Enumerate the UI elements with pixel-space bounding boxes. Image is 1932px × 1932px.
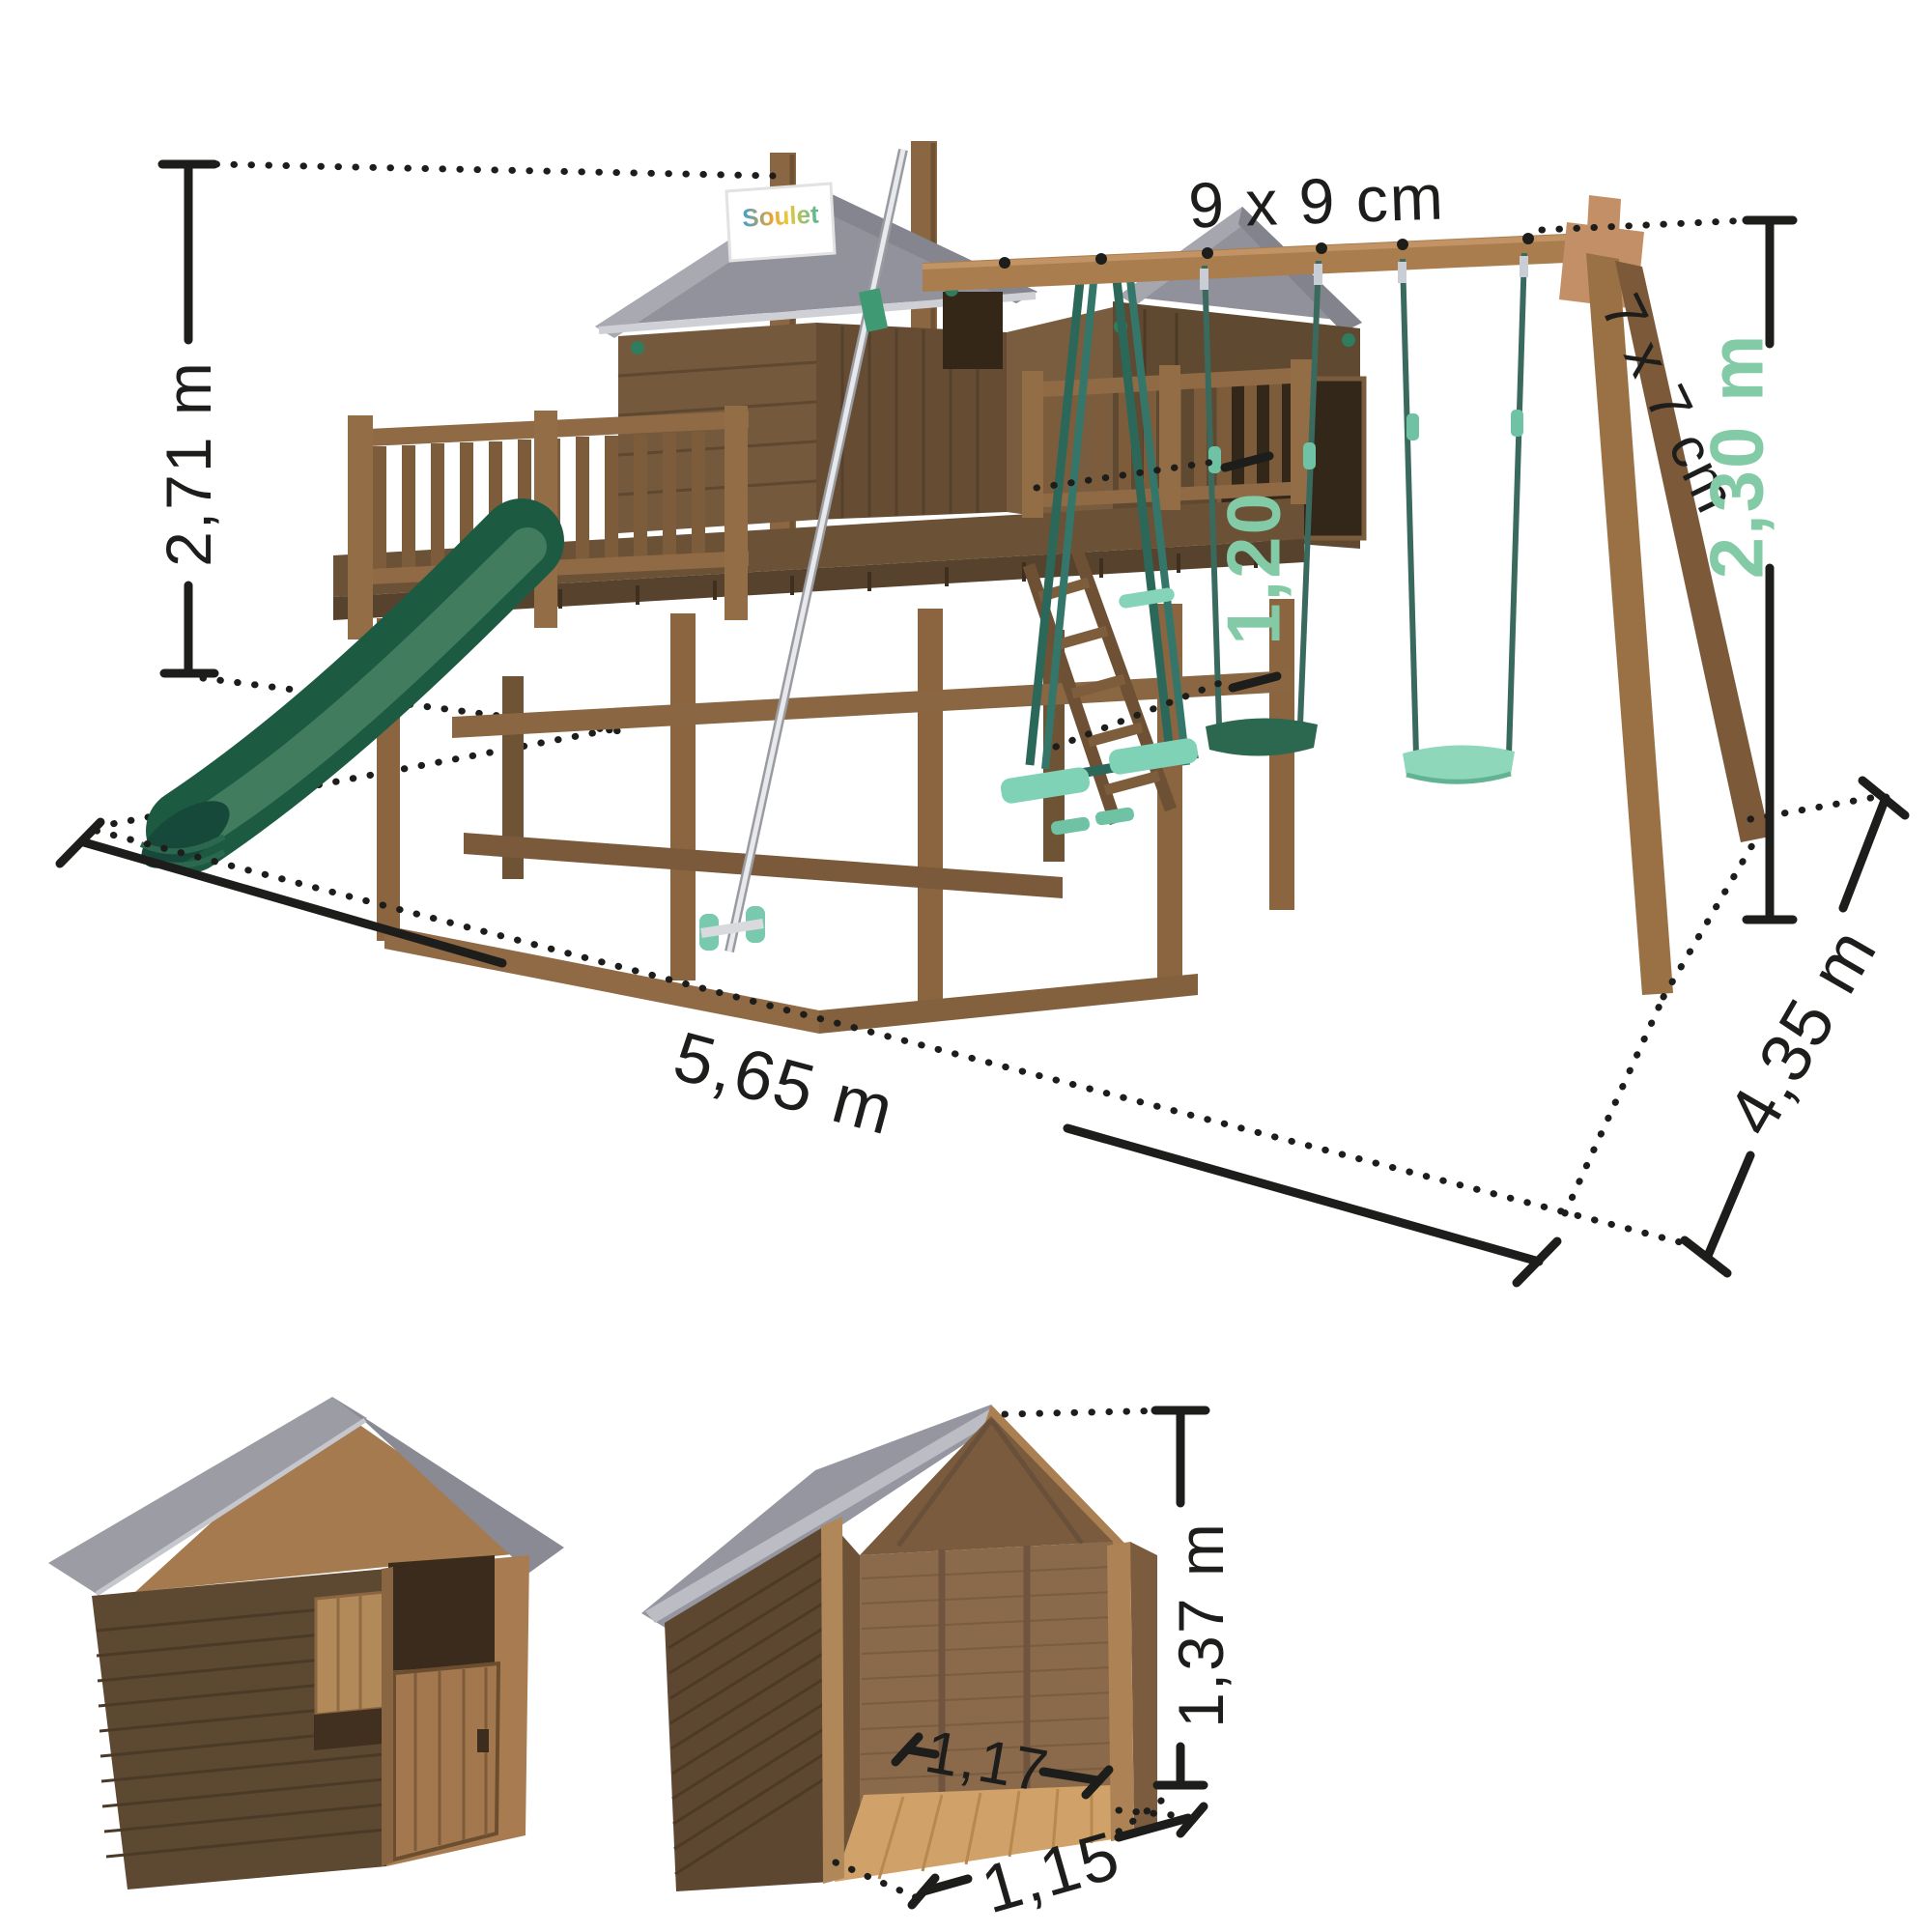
swing-seat-dark: [1206, 718, 1318, 755]
dim-beam-section-label: 9 x 9 cm: [1187, 159, 1446, 241]
dim-swing-beam-height-label: 2,30 m: [1693, 333, 1781, 580]
playhouse-door: [394, 1663, 498, 1860]
dim-platform-height-label: 1,20: [1210, 491, 1298, 645]
playhouse-open-group: [641, 1405, 1157, 1891]
playhouse-shutter: [316, 1592, 385, 1715]
dim-house-height-label: 1,37 m: [1164, 1521, 1237, 1728]
swing-right: [1398, 253, 1528, 783]
dim-total-height-label: 2,71 m: [152, 360, 225, 567]
tower-window-opening: [943, 292, 1003, 369]
brand-logo-text: Soulet: [742, 199, 820, 233]
playhouse-window-opening: [388, 1555, 495, 1671]
playhouse-closed-group: [48, 1397, 564, 1889]
product-dimensions-diagram: 2,71 m 9 x 9 cm 7 x 7 cm 2,30 m 1,20 5,6…: [0, 0, 1932, 1932]
flower-box: [314, 1708, 384, 1750]
door-handle: [477, 1729, 489, 1752]
